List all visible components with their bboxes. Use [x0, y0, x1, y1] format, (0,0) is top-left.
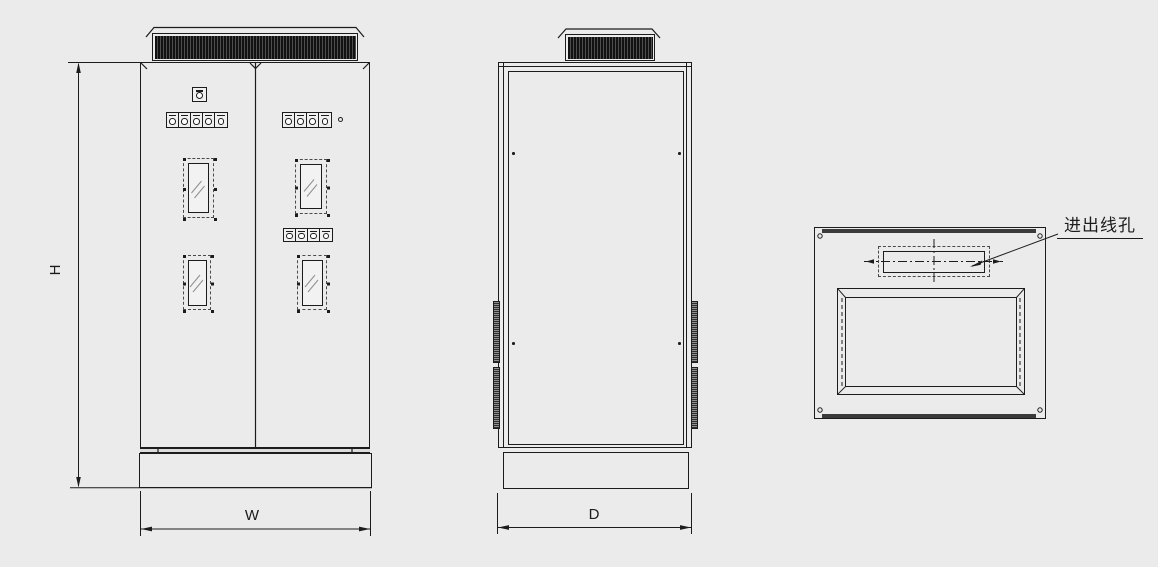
top-vent-frame-inner [845, 297, 1017, 387]
technical-drawing-canvas: H W D 进出线孔 [0, 0, 1158, 567]
top-view: 进出线孔 [0, 0, 1158, 567]
cable-entry-hole [883, 251, 985, 273]
top-edge-strip-front [822, 229, 1036, 233]
top-edge-strip-rear [822, 414, 1036, 418]
cable-hole-label: 进出线孔 [1057, 211, 1143, 239]
